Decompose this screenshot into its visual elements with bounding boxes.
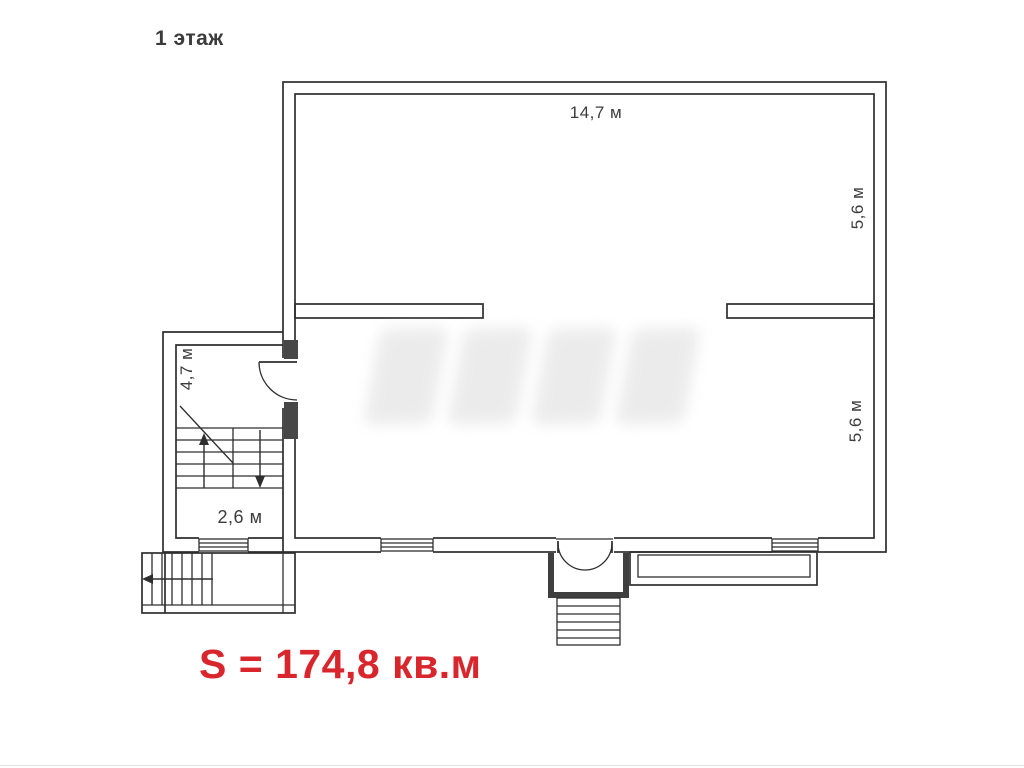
watermark [372,328,692,424]
watermark-blob [531,327,617,425]
staircase [176,406,283,488]
dimension-label-top-width: 14,7 м [556,103,636,123]
porch-steps [557,598,620,645]
total-area-label: S = 174,8 кв.м [199,641,482,688]
watermark-blob [447,327,533,425]
watermark-blob [615,327,701,425]
exterior-staircase [142,553,295,613]
interior-wall [295,304,874,318]
dimension-label-annex-width: 2,6 м [208,507,272,528]
main-building-walls [283,82,886,552]
scan-edge-artifact [0,765,1024,766]
terrace [630,552,817,585]
floor-plan-page: 1 этаж [0,0,1024,768]
dimension-label-annex-height: 4,7 м [177,339,197,399]
watermark-blob [363,327,449,425]
dimension-label-right-lower: 5,6 м [846,391,866,451]
dimension-label-right-upper: 5,6 м [848,178,868,238]
